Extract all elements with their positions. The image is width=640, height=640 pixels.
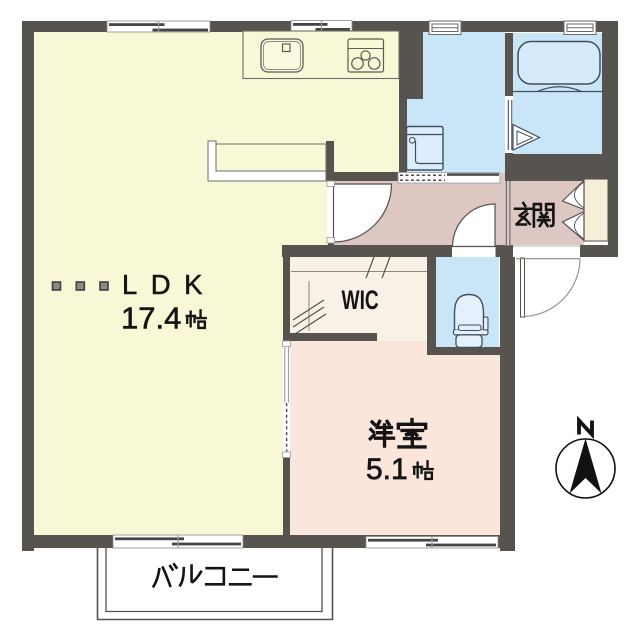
svg-text:LDK: LDK [122, 269, 216, 300]
svg-text:WIC: WIC [342, 285, 379, 315]
svg-text:5.1: 5.1 [366, 453, 408, 486]
svg-text:17.4: 17.4 [121, 301, 181, 336]
